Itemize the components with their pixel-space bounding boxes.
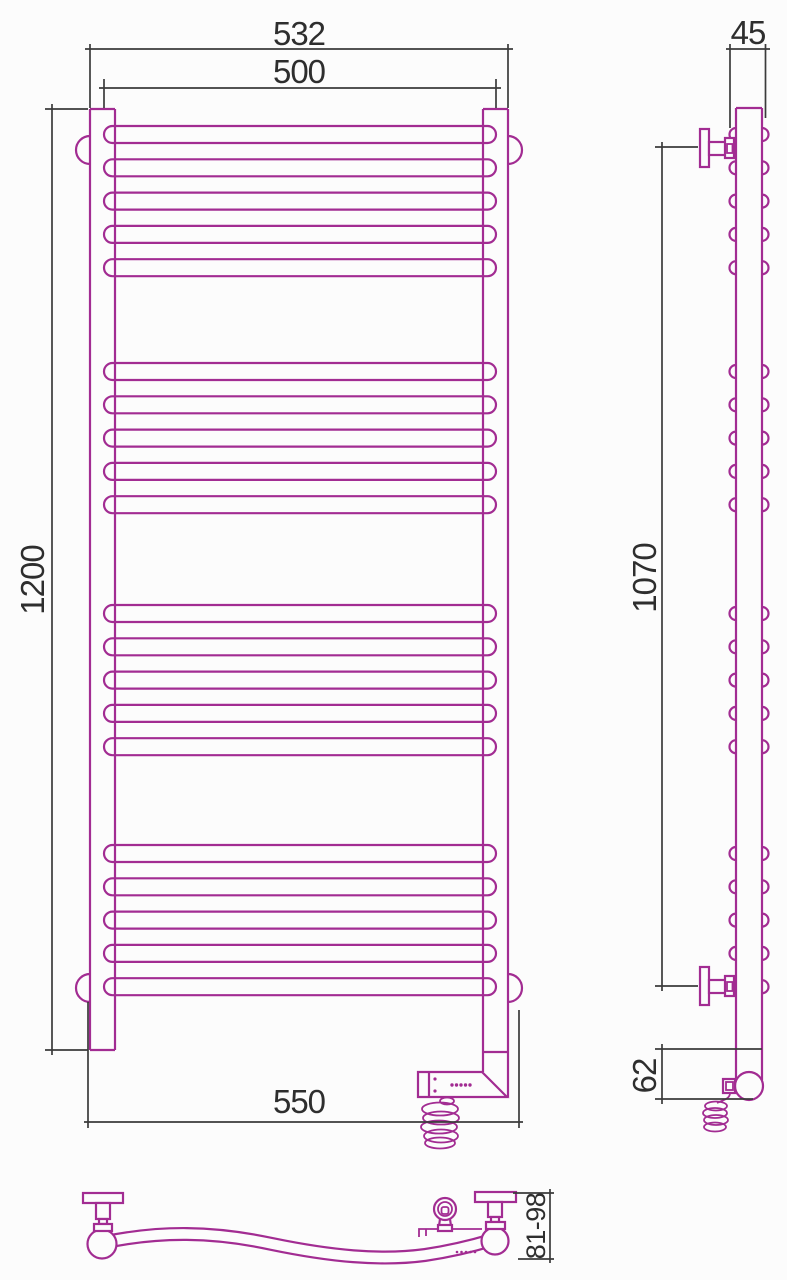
dim-label-wall-distance: 81-98 (521, 1193, 551, 1260)
side-tube (736, 108, 762, 1080)
rung-bar (104, 605, 496, 622)
dim-label-mount-span: 1070 (626, 543, 663, 613)
tube-end-left (88, 1230, 117, 1259)
power-cable-coil (421, 1098, 459, 1149)
bottom-right-bracket (475, 1192, 516, 1255)
side-view: 45 1070 62 (626, 14, 770, 1132)
drawing-page: 532 500 1200 550 (0, 0, 787, 1280)
dim-label-depth: 45 (731, 14, 766, 51)
rung-bar (104, 638, 496, 655)
rung-bar (104, 978, 496, 995)
dim-label-height: 1200 (14, 545, 51, 615)
rung-bar (104, 126, 496, 143)
rung-bar (104, 396, 496, 413)
dim-wall-distance: 81-98 (513, 1189, 554, 1263)
bottom-view: 81-98 (83, 1189, 554, 1263)
indicator-dots (433, 1077, 471, 1092)
rung-bar (104, 672, 496, 689)
technical-drawing: 532 500 1200 550 (0, 0, 787, 1280)
power-plug-side (723, 1079, 735, 1093)
dim-label-base-width: 550 (273, 1083, 326, 1120)
rung-bar (104, 912, 496, 929)
front-view: 532 500 1200 550 (14, 15, 523, 1149)
rung-bar (104, 463, 496, 480)
dim-rail-width: 500 (99, 53, 501, 108)
mount-bracket-arc-bottom-left (76, 974, 90, 1002)
dim-depth: 45 (726, 14, 770, 128)
rung-bar (104, 845, 496, 862)
rung-bar (104, 430, 496, 447)
rung-bar (104, 159, 496, 176)
mount-bracket-arc-bottom-right (508, 974, 522, 1002)
heating-element-side (735, 1072, 763, 1100)
dim-mount-span: 1070 (626, 142, 698, 991)
wall-bracket-bottom (700, 967, 734, 1005)
rung-bars (104, 126, 496, 995)
mount-bracket-arc-top-right (508, 136, 522, 164)
rung-bar (104, 878, 496, 895)
rung-bar (104, 738, 496, 755)
cable-gland-top-view (434, 1198, 456, 1231)
rung-bar (104, 705, 496, 722)
rung-bar (104, 363, 496, 380)
bottom-left-bracket (83, 1193, 123, 1259)
dim-height: 1200 (14, 104, 88, 1055)
dim-label-rail-width: 500 (273, 53, 326, 90)
rung-bar (104, 193, 496, 210)
dim-label-outer-width: 532 (273, 15, 325, 52)
rung-bar (104, 226, 496, 243)
rung-bar (104, 945, 496, 962)
dim-label-bottom-offset: 62 (626, 1059, 663, 1094)
heating-element-box (418, 1072, 507, 1097)
wavy-rail-top-view (106, 1234, 492, 1258)
rung-bar (104, 259, 496, 276)
mount-bracket-arc-top-left (76, 136, 90, 164)
rung-bar (104, 496, 496, 513)
front-left-tube (90, 109, 115, 1050)
tube-end-right (482, 1228, 509, 1255)
